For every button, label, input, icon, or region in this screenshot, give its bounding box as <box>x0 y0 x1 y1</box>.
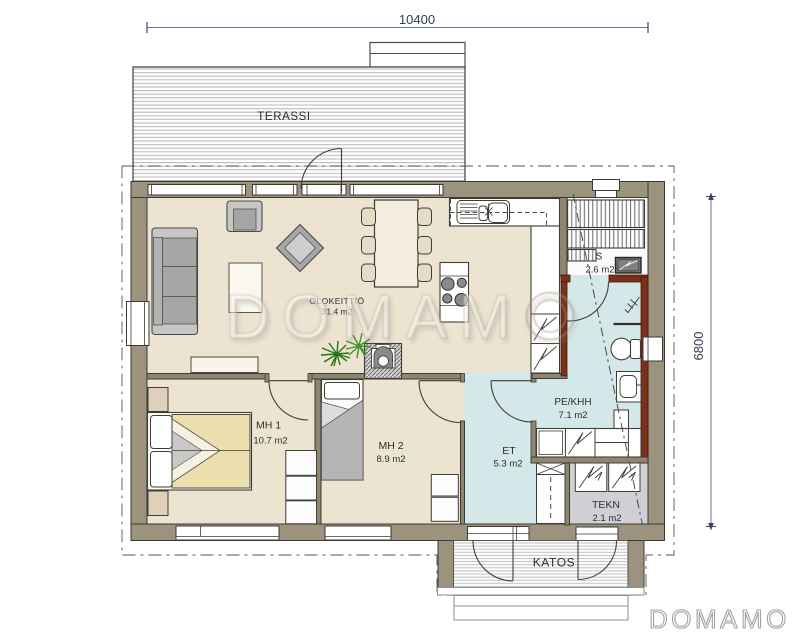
svg-text:TERASSI: TERASSI <box>257 111 310 123</box>
svg-text:10400: 10400 <box>399 12 435 27</box>
svg-text:2.6 m2: 2.6 m2 <box>585 265 614 276</box>
svg-text:MH 2: MH 2 <box>378 440 403 452</box>
svg-text:8.9 m2: 8.9 m2 <box>376 454 405 465</box>
svg-text:TEKN: TEKN <box>592 499 620 511</box>
svg-text:KATOS: KATOS <box>533 556 576 570</box>
svg-text:5.3 m2: 5.3 m2 <box>493 459 522 470</box>
svg-text:DOMAMO: DOMAMO <box>649 604 790 634</box>
svg-text:10.7 m2: 10.7 m2 <box>253 436 287 447</box>
svg-text:MH 1: MH 1 <box>256 420 281 432</box>
svg-text:7.1 m2: 7.1 m2 <box>558 410 587 421</box>
svg-text:2.1 m2: 2.1 m2 <box>592 513 621 524</box>
svg-text:DOMAM: DOMAM <box>225 283 523 352</box>
svg-text:S: S <box>596 252 603 263</box>
svg-text:ET: ET <box>502 445 516 457</box>
svg-text:6800: 6800 <box>691 332 706 361</box>
svg-text:PE/KHH: PE/KHH <box>554 397 591 408</box>
